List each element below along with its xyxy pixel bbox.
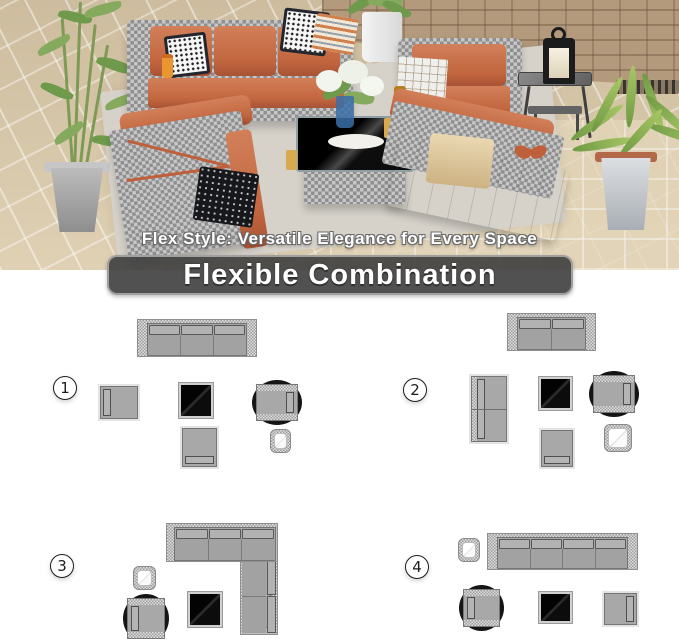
layout-diagrams: 1 2 3 4 (0, 0, 679, 639)
product-image: Flex Style: Versatile Elegance for Every… (0, 0, 679, 639)
side-table-topview (270, 429, 291, 453)
layout-4-number: 4 (405, 555, 429, 579)
swivel-chair-topview (256, 384, 298, 421)
glass-coffee-table-topview (179, 383, 213, 418)
layout-3-number: 3 (50, 554, 74, 578)
armless-sofa-topview (182, 428, 217, 467)
l-shaped-sectional-topview (166, 523, 278, 635)
glass-coffee-table-topview (188, 592, 222, 627)
loveseat-sofa-topview (507, 313, 596, 351)
banner-label: Flexible Combination (183, 259, 496, 292)
armless-sofa-topview (541, 430, 573, 467)
armless-sofa-topview (100, 386, 138, 419)
armless-sofa-topview (604, 593, 637, 625)
side-table-topview (133, 566, 156, 590)
glass-coffee-table-topview (539, 377, 572, 410)
layout-1-number: 1 (53, 376, 77, 400)
side-table-topview (458, 538, 480, 562)
swivel-chair-topview (463, 589, 500, 627)
four-seat-sofa-topview (487, 533, 638, 570)
side-table-topview (604, 424, 632, 452)
three-seat-sofa-topview (137, 319, 257, 357)
layout-2-number: 2 (403, 378, 427, 402)
swivel-chair-topview (593, 375, 635, 413)
swivel-chair-topview (127, 598, 165, 639)
double-armless-sofa-topview (471, 376, 507, 442)
glass-coffee-table-topview (539, 592, 572, 623)
banner: Flexible Combination (107, 255, 573, 295)
